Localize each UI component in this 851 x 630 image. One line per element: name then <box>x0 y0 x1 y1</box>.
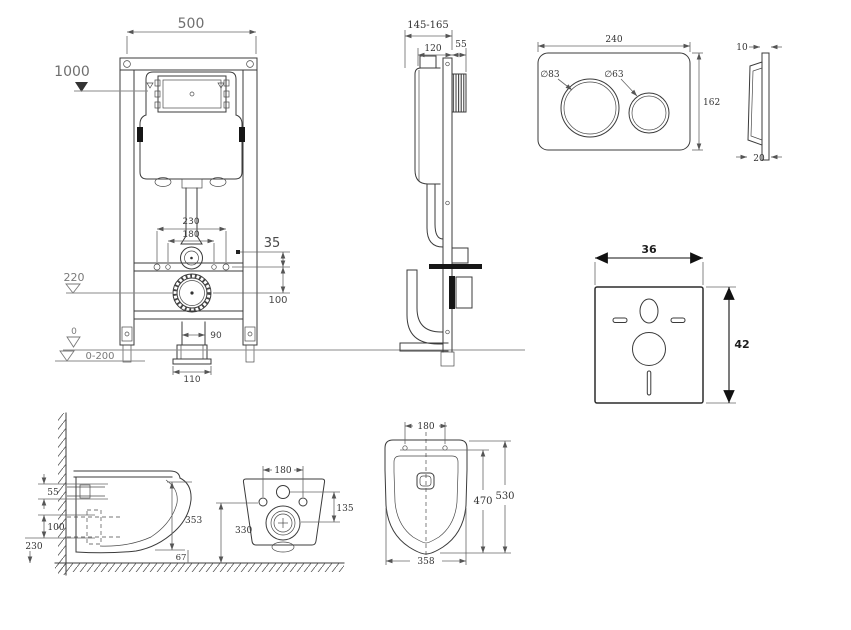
plate-profile <box>762 53 769 160</box>
flush-plate-front-view: 240 162 ∅83 ∅63 <box>538 35 720 150</box>
toilet-rear-view: 180 135 330 <box>216 466 354 563</box>
technical-drawing-page: 500 1000 230 180 35 100 220 90 <box>0 0 851 630</box>
dim-depth-range: 145-165 <box>407 20 449 31</box>
toilet-side-dimensions: 55 100 230 353 67 <box>25 474 202 563</box>
dim-bottom-clearance: 67 <box>176 553 187 563</box>
level-triangle-filled <box>75 82 88 92</box>
access-window-inner <box>163 80 221 108</box>
dim-foot-span: 90 <box>210 331 222 341</box>
dim-pipe-span: 230 <box>182 217 199 227</box>
drawing-canvas: 500 1000 230 180 35 100 220 90 <box>0 0 851 630</box>
frame-side-structure <box>400 56 482 366</box>
dim-width: 358 <box>417 557 434 567</box>
dim-drain-height: 220 <box>64 271 85 284</box>
dim-adjust-range: 0-200 <box>85 351 114 362</box>
dim-frame-depth: 120 <box>424 44 441 54</box>
dim-inner-length: 470 <box>473 496 492 507</box>
outlet-socket <box>456 277 472 308</box>
dim-bracket-depth: 55 <box>455 40 467 50</box>
wall-and-floor <box>55 413 344 575</box>
mount-flange <box>137 127 143 142</box>
drain-elbow-inner <box>417 270 443 332</box>
dim-big-button: ∅83 <box>540 70 560 80</box>
mat-outline <box>595 287 703 403</box>
foot-assembly-front <box>173 322 211 364</box>
dim-inlet-to-drain: 135 <box>336 504 353 514</box>
dim-drain-offset: 100 <box>268 295 287 306</box>
mount-flange <box>239 127 245 142</box>
toilet-side-view: 55 100 230 353 67 <box>25 471 202 563</box>
side-foot <box>441 352 454 366</box>
dim-length: 530 <box>495 491 514 502</box>
dim-floor-level: 0 <box>71 327 77 337</box>
frame-front-dimensions: 500 1000 230 180 35 100 220 90 <box>54 16 525 385</box>
toilet-top-dimensions: 180 470 530 358 <box>386 422 515 567</box>
bolt-hole <box>154 264 160 270</box>
toilet-side-outline <box>74 471 191 553</box>
outlet-flange <box>449 276 455 309</box>
rear-bolt-hole <box>259 498 267 506</box>
toilet-top-view: 180 470 530 358 <box>385 422 515 567</box>
dim-rail-offset: 35 <box>264 236 281 251</box>
access-window-outer <box>158 76 226 112</box>
flush-plate-outline <box>538 53 690 150</box>
dim-bowl-height: 353 <box>185 516 202 526</box>
sound-mat-view: 36 42 <box>595 243 750 403</box>
frame-side-view: 145-165 120 55 <box>400 20 482 366</box>
dim-rear-bolt-span: 180 <box>274 466 291 476</box>
dim-top-thickness: 10 <box>736 43 748 53</box>
adjustable-foot <box>246 345 254 362</box>
inlet-box <box>452 248 468 263</box>
floor-triangle <box>67 337 80 347</box>
dim-bottom-thickness: 20 <box>753 154 765 164</box>
bolt-hole <box>223 264 229 270</box>
level-triangle-open <box>66 284 80 293</box>
fill-valve-cap <box>420 56 436 68</box>
corner-screw <box>124 61 131 68</box>
frame-front-view: 500 1000 230 180 35 100 220 90 <box>54 16 525 385</box>
drain-outlet-front <box>173 274 211 312</box>
toilet-side-fittings <box>67 485 120 544</box>
adjust-triangle <box>60 351 74 361</box>
dim-install-height: 1000 <box>54 64 90 80</box>
corner-screw <box>247 61 254 68</box>
water-level-mark <box>147 83 153 88</box>
mount-bar <box>429 264 482 269</box>
dim-drain-height: 230 <box>25 542 42 552</box>
flush-pipe-front <box>181 188 203 269</box>
dim-bolt-spacing: 100 <box>47 523 64 533</box>
top-bolt-hole <box>403 446 407 450</box>
rear-bolt-hole <box>299 498 307 506</box>
dim-bolt-span: 180 <box>182 230 199 240</box>
dim-mat-width: 36 <box>641 243 657 256</box>
dim-plate-width: 240 <box>605 35 622 45</box>
dim-frame-width: 500 <box>178 16 205 32</box>
bolt-hole <box>212 265 217 270</box>
adjustable-foot <box>123 345 131 362</box>
dim-mat-height: 42 <box>734 338 749 351</box>
small-button <box>629 93 669 133</box>
corner-plate <box>245 327 255 341</box>
dim-small-button: ∅63 <box>604 70 624 80</box>
dim-top-bolt-span: 180 <box>417 422 434 432</box>
bolt-hole <box>166 265 171 270</box>
drain-elbow-outer <box>407 270 443 344</box>
corner-plate <box>122 327 132 341</box>
wall-bracket-block <box>452 74 466 112</box>
dim-seat-to-bolt: 55 <box>47 488 59 498</box>
flush-opening <box>417 473 434 489</box>
dim-plate-height: 162 <box>703 98 720 108</box>
cistern-front <box>137 72 245 188</box>
wall-hatch <box>58 413 66 575</box>
plate-back-body <box>748 62 762 145</box>
bolt-rail <box>134 263 243 319</box>
inlet-hole <box>277 486 290 499</box>
rear-bottom-outlet <box>272 542 294 552</box>
floor-hatch <box>55 563 344 572</box>
top-bolt-hole <box>443 446 447 450</box>
dim-bolt-height: 330 <box>235 526 252 536</box>
plate-side-dimensions: 10 20 <box>736 43 782 164</box>
dim-base-span: 110 <box>183 375 200 385</box>
flush-plate-side-view: 10 20 <box>736 43 782 164</box>
